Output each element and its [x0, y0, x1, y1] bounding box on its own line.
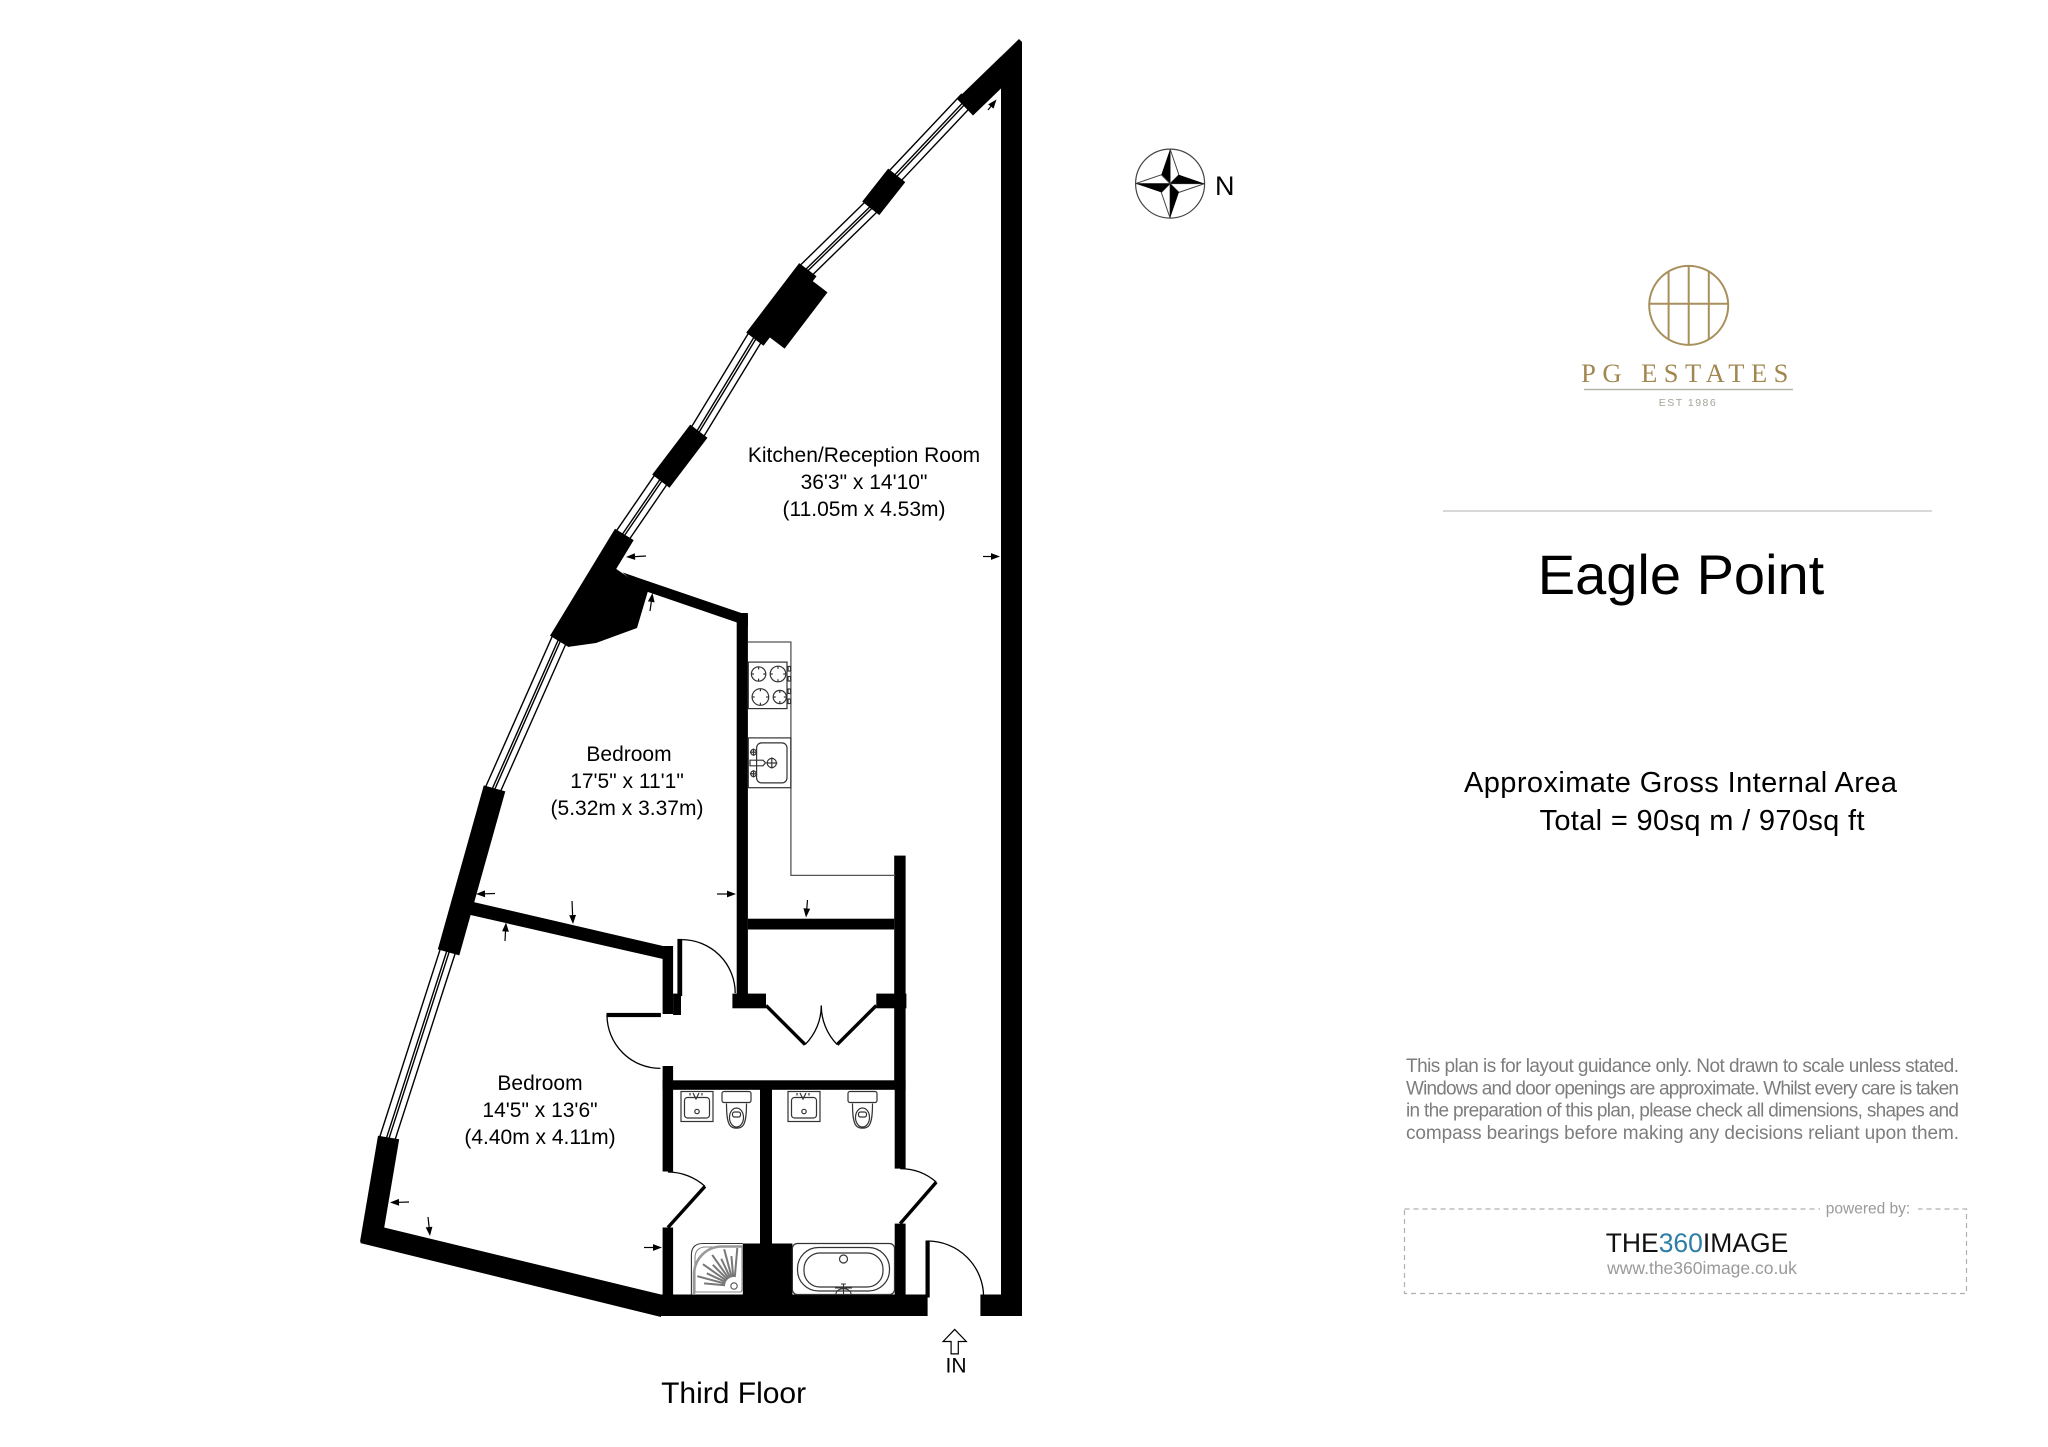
svg-text:36'3" x 14'10": 36'3" x 14'10" [801, 471, 928, 494]
svg-text:Eagle Point: Eagle Point [1538, 543, 1825, 606]
svg-text:(4.40m x 4.11m): (4.40m x 4.11m) [464, 1126, 615, 1149]
svg-text:Kitchen/Reception Room: Kitchen/Reception Room [748, 444, 980, 467]
svg-text:17'5" x 11'1": 17'5" x 11'1" [570, 770, 684, 793]
svg-text:powered by:: powered by: [1826, 1201, 1910, 1218]
svg-text:in the preparation of this pla: in the preparation of this plan, please … [1406, 1101, 1959, 1122]
svg-text:EST 1986: EST 1986 [1659, 397, 1718, 409]
svg-text:Bedroom: Bedroom [497, 1072, 582, 1095]
svg-text:IN: IN [946, 1355, 967, 1378]
svg-text:Bedroom: Bedroom [586, 743, 671, 766]
svg-text:This plan is for layout guidan: This plan is for layout guidance only. N… [1406, 1056, 1959, 1077]
svg-text:(11.05m x 4.53m): (11.05m x 4.53m) [782, 498, 945, 521]
svg-text:Total = 90sq m / 970sq ft: Total = 90sq m / 970sq ft [1540, 805, 1865, 837]
svg-text:Windows and door openings are: Windows and door openings are approximat… [1406, 1078, 1959, 1099]
svg-text:(5.32m x 3.37m): (5.32m x 3.37m) [551, 797, 704, 820]
svg-text:Third Floor: Third Floor [661, 1377, 806, 1410]
svg-text:PG ESTATES: PG ESTATES [1581, 358, 1795, 388]
svg-text:14'5" x 13'6": 14'5" x 13'6" [482, 1099, 597, 1122]
svg-text:www.the360image.co.uk: www.the360image.co.uk [1606, 1258, 1797, 1278]
svg-text:THE360IMAGE: THE360IMAGE [1606, 1228, 1789, 1258]
svg-text:Approximate Gross Internal Are: Approximate Gross Internal Area [1464, 767, 1898, 799]
svg-text:compass bearings before making: compass bearings before making any decis… [1406, 1123, 1959, 1144]
svg-text:N: N [1215, 171, 1235, 201]
